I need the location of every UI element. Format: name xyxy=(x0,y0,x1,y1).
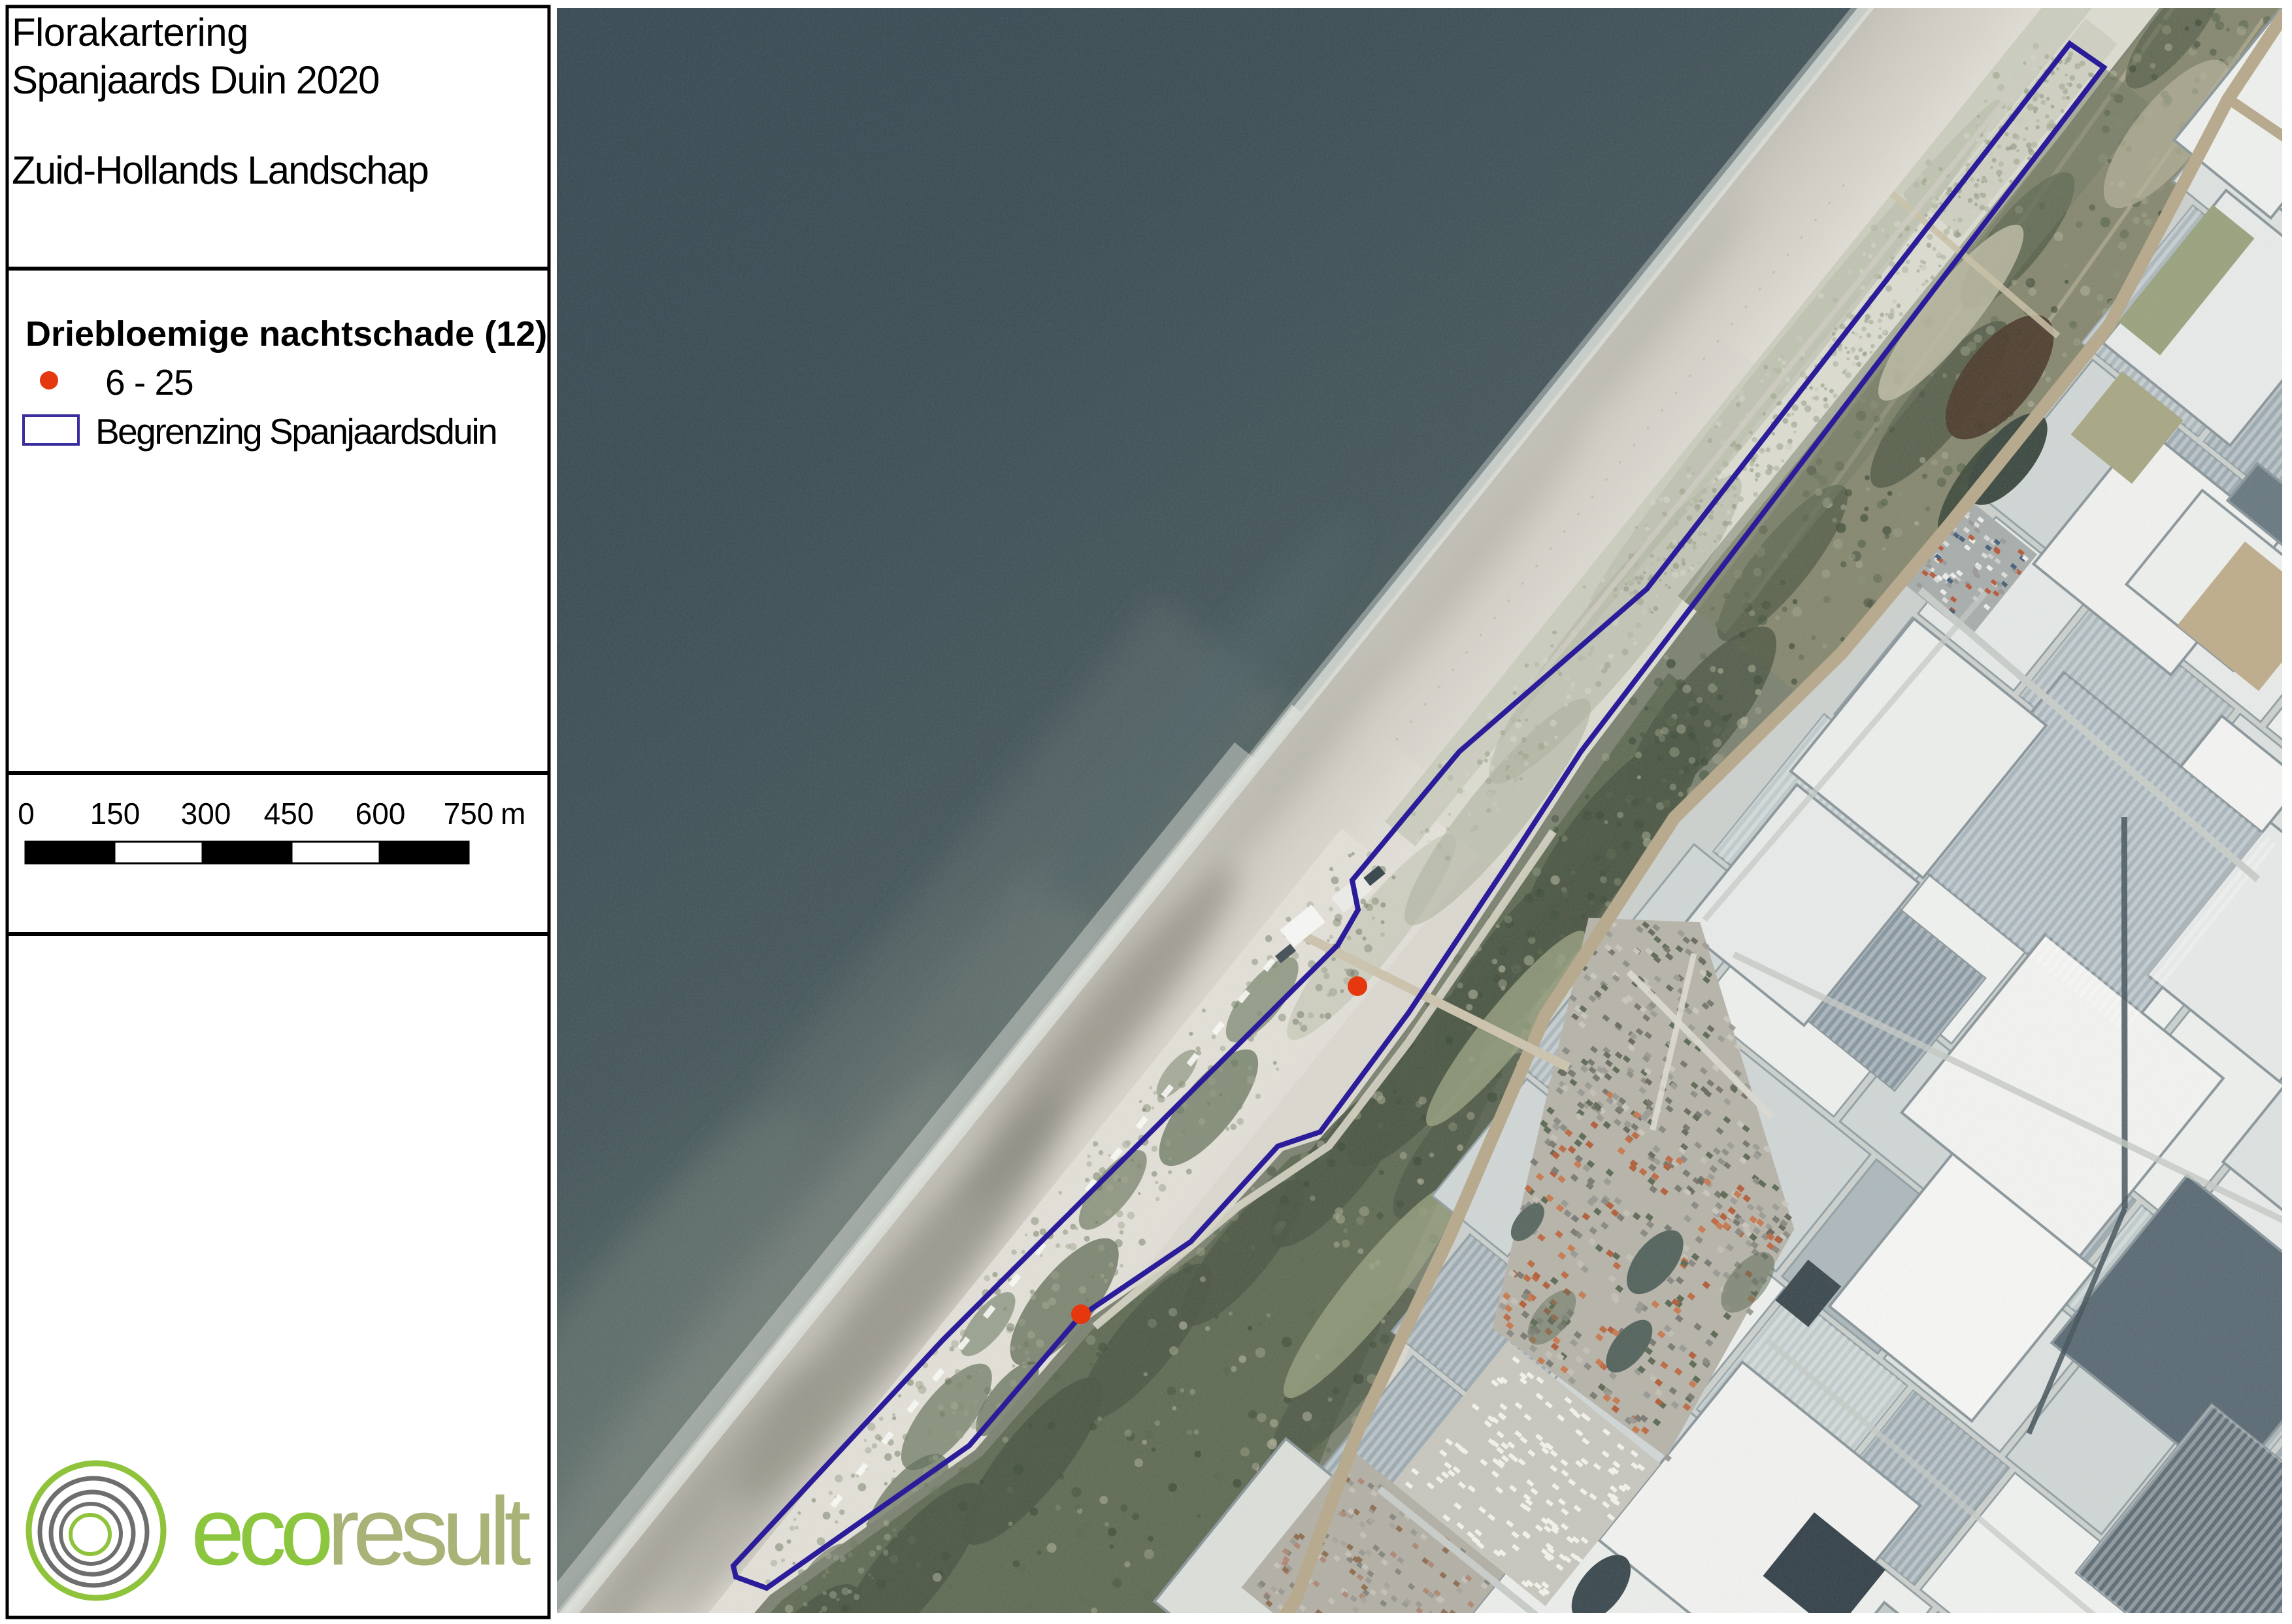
svg-text:750: 750 xyxy=(444,797,494,831)
svg-text:m: m xyxy=(501,797,525,831)
svg-text:150: 150 xyxy=(90,797,141,831)
svg-text:ecoresult: ecoresult xyxy=(191,1478,531,1585)
svg-text:Driebloemige nachtschade (12): Driebloemige nachtschade (12) xyxy=(25,314,547,354)
svg-text:Spanjaards Duin 2020: Spanjaards Duin 2020 xyxy=(12,58,379,102)
svg-text:600: 600 xyxy=(356,797,406,831)
svg-text:6 - 25: 6 - 25 xyxy=(105,362,193,403)
svg-text:300: 300 xyxy=(181,797,231,831)
svg-text:Begrenzing Spanjaardsduin: Begrenzing Spanjaardsduin xyxy=(95,411,496,452)
svg-text:Florakartering: Florakartering xyxy=(12,10,248,54)
svg-text:Zuid-Hollands Landschap: Zuid-Hollands Landschap xyxy=(12,148,428,192)
svg-text:0: 0 xyxy=(18,797,35,831)
svg-text:450: 450 xyxy=(264,797,314,831)
